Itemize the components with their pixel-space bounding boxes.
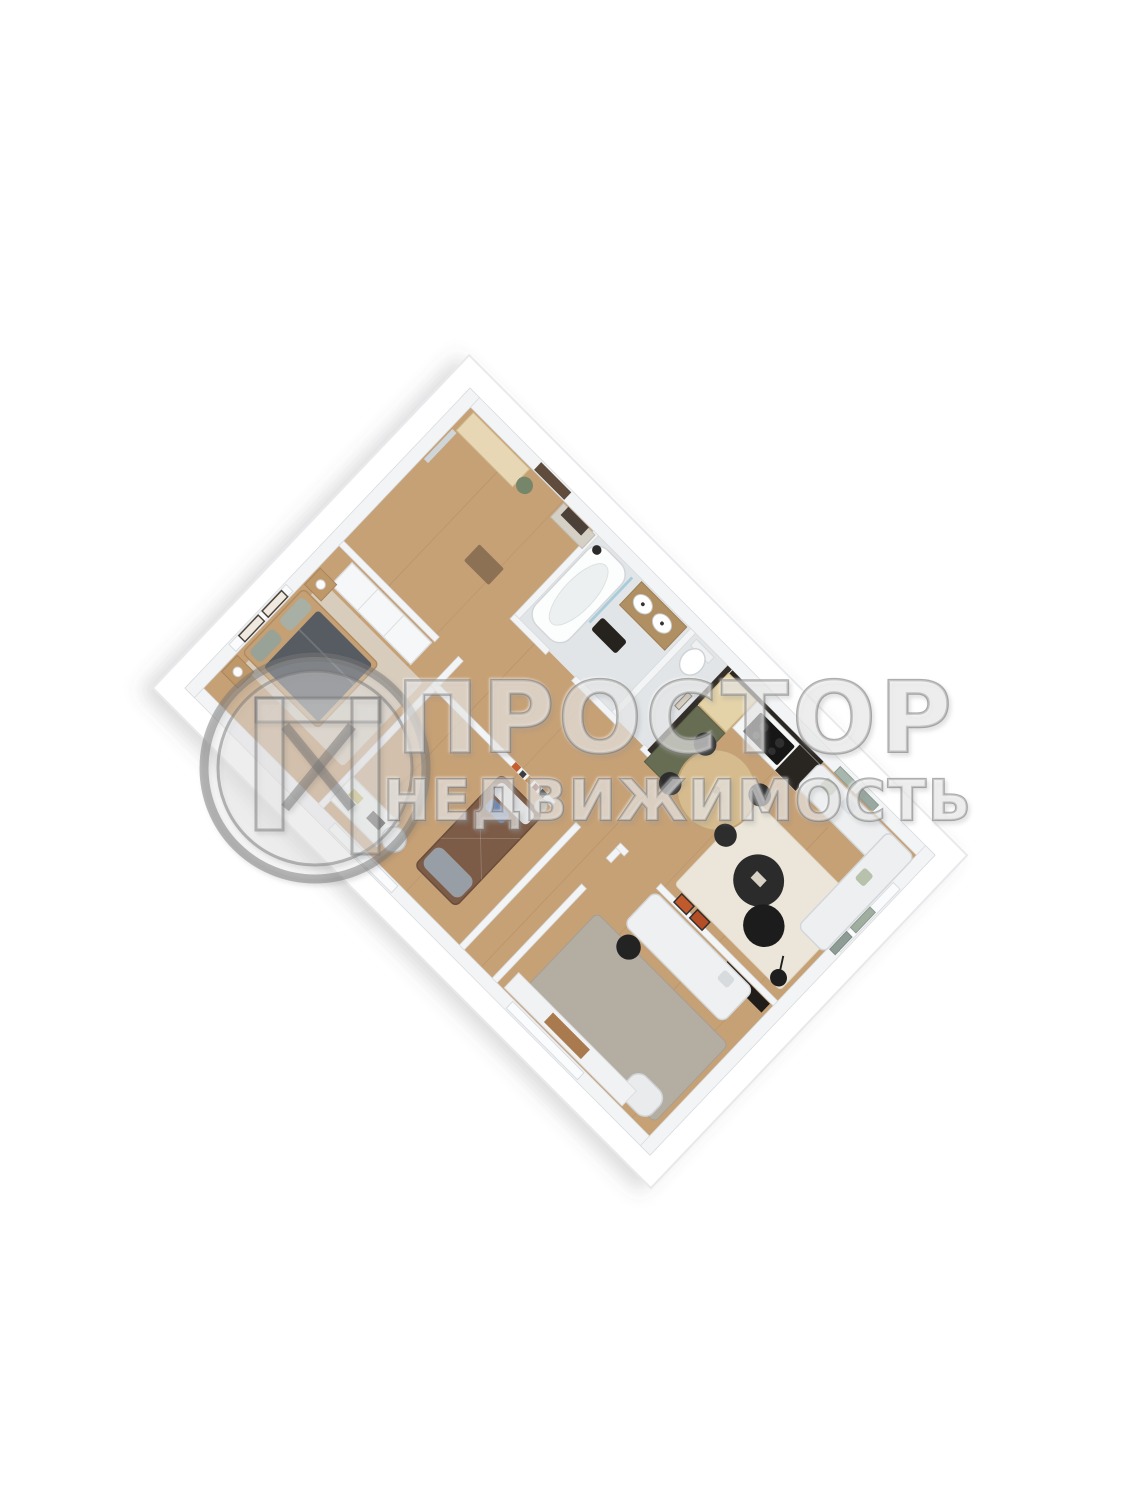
page: ПРОСТОР НЕДВИЖИМОСТЬ [0, 0, 1125, 1504]
floorplan-figure: ПРОСТОР НЕДВИЖИМОСТЬ [0, 0, 1125, 1504]
watermark-brand-subtitle: НЕДВИЖИМОСТЬ [383, 769, 972, 834]
watermark-brand-name: ПРОСТОР [396, 662, 955, 776]
floorplan-render: ПРОСТОР НЕДВИЖИМОСТЬ [0, 0, 1125, 1504]
